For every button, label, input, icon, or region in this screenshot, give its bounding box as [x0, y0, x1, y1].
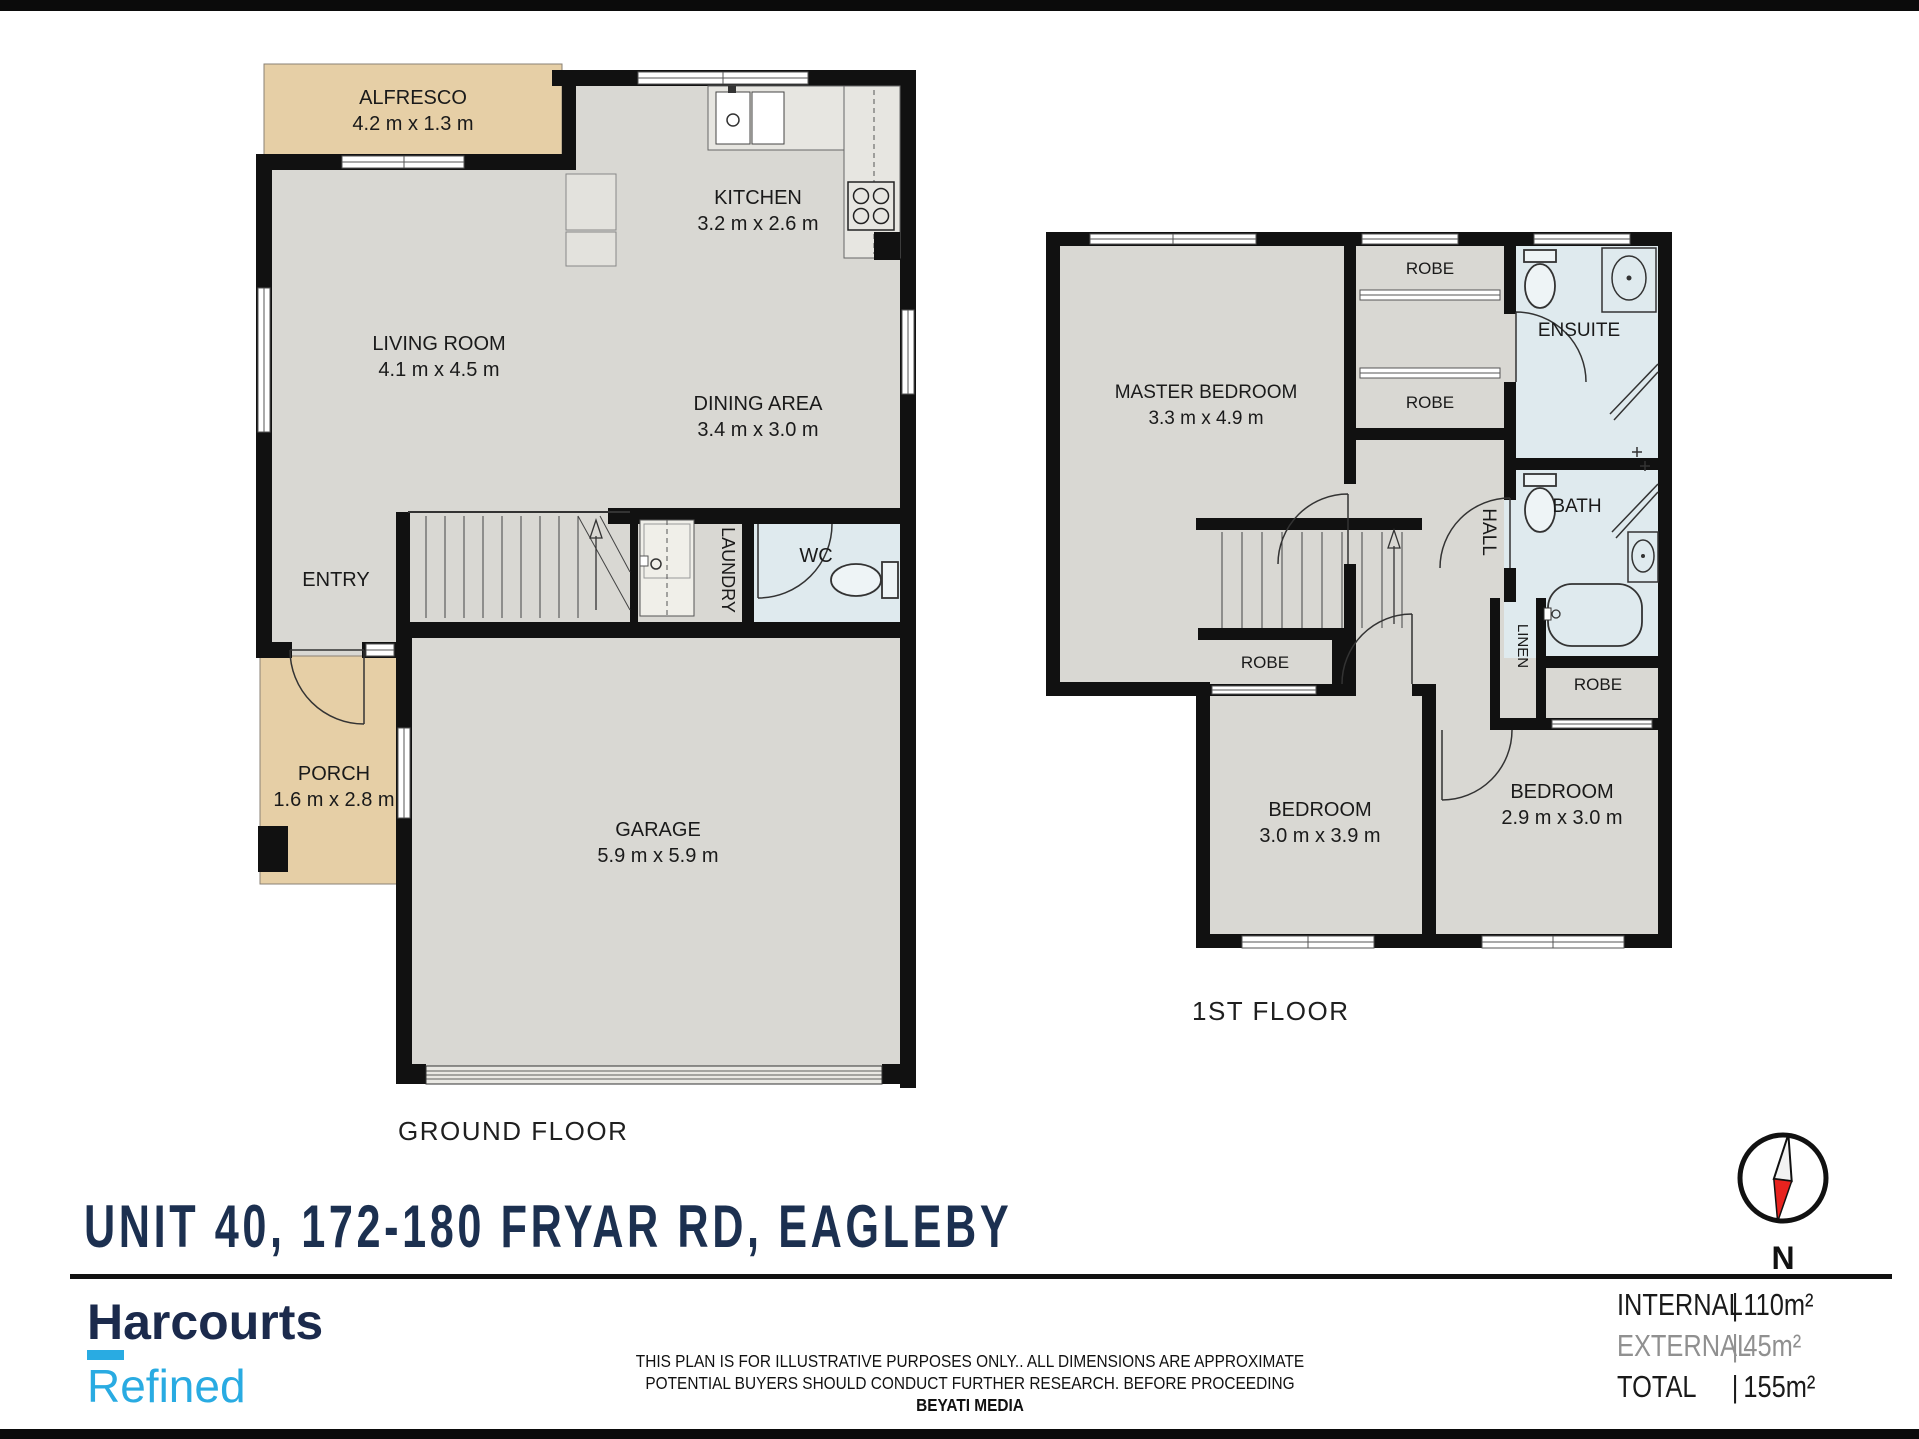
area-label: EXTERNAL — [1617, 1328, 1732, 1364]
dining-label: DINING AREA — [694, 393, 824, 415]
area-label: INTERNAL — [1617, 1287, 1732, 1323]
toilet-icon — [1524, 250, 1556, 262]
disclaimer: THIS PLAN IS FOR ILLUSTRATIVE PURPOSES O… — [590, 1350, 1350, 1416]
robe4-label: ROBE — [1574, 675, 1622, 694]
area-separator: | — [1732, 1328, 1739, 1364]
area-separator: | — [1732, 1369, 1739, 1405]
stove-icon — [848, 182, 894, 230]
alfresco-label: ALFRESCO — [359, 87, 467, 109]
kitchen-cabinets — [566, 174, 616, 266]
linen-label: LINEN — [1514, 624, 1531, 668]
master-label: MASTER BEDROOM — [1115, 382, 1298, 403]
wc-label: WC — [799, 545, 832, 567]
area-row-external: EXTERNAL | 45m² — [1617, 1328, 1815, 1369]
kitchen-block — [874, 232, 900, 260]
bedroom2-dims: 2.9 m x 3.0 m — [1501, 807, 1622, 829]
living-dims: 4.1 m x 4.5 m — [378, 359, 499, 381]
area-label: TOTAL — [1617, 1369, 1732, 1405]
kitchen-label: KITCHEN — [714, 187, 802, 209]
brand-name: Harcourts — [87, 1296, 323, 1348]
entry-label: ENTRY — [302, 569, 369, 591]
compass-icon: N — [1733, 1124, 1833, 1284]
laundry-trough — [640, 520, 694, 616]
brand-division: Refined — [87, 1362, 323, 1410]
kitchen-sink — [716, 92, 750, 144]
bottom-black-bar — [0, 1429, 1919, 1439]
area-value: 110m² — [1743, 1287, 1813, 1323]
area-value: 45m² — [1743, 1328, 1801, 1364]
ground-floor-caption: GROUND FLOOR — [398, 1116, 628, 1147]
toilet-icon — [1524, 474, 1556, 486]
ensuite-label: ENSUITE — [1538, 320, 1620, 341]
bedroom2-label: BEDROOM — [1510, 781, 1613, 803]
first-floor-plan: MASTER BEDROOM 3.3 m x 4.9 m ROBE ROBE E… — [1046, 232, 1686, 972]
area-row-internal: INTERNAL | 110m² — [1617, 1287, 1815, 1328]
alfresco-dims: 4.2 m x 1.3 m — [352, 113, 473, 135]
living-label: LIVING ROOM — [372, 333, 505, 355]
robe2-label: ROBE — [1406, 393, 1454, 412]
garage-door — [426, 1066, 882, 1084]
porch-dims: 1.6 m x 2.8 m — [273, 789, 394, 811]
divider-rule — [70, 1274, 1892, 1279]
area-separator: | — [1732, 1287, 1739, 1323]
brand-logo: Harcourts Refined — [87, 1296, 323, 1410]
bath-label: BATH — [1552, 496, 1601, 517]
disclaimer-line-3: BEYATI MEDIA — [636, 1394, 1305, 1416]
robe1-label: ROBE — [1406, 259, 1454, 278]
area-summary: INTERNAL | 110m² EXTERNAL | 45m² TOTAL |… — [1617, 1287, 1859, 1410]
porch-label: PORCH — [298, 763, 370, 785]
laundry-label: LAUNDRY — [718, 527, 738, 613]
hall-label: HALL — [1478, 508, 1499, 556]
master-dims: 3.3 m x 4.9 m — [1148, 408, 1263, 429]
dining-dims: 3.4 m x 3.0 m — [697, 419, 818, 441]
floorplan-page: ALFRESCO 4.2 m x 1.3 m KITCHEN 3.2 m x 2… — [0, 0, 1919, 1439]
bedroom1-dims: 3.0 m x 3.9 m — [1259, 825, 1380, 847]
toilet-icon — [831, 562, 898, 598]
ground-floor-plan: ALFRESCO 4.2 m x 1.3 m KITCHEN 3.2 m x 2… — [256, 62, 916, 1102]
top-black-bar — [0, 0, 1919, 11]
porch-pillar — [258, 826, 288, 872]
compass-north-label: N — [1771, 1240, 1794, 1276]
robe3-label: ROBE — [1241, 653, 1289, 672]
bedroom1-label: BEDROOM — [1268, 799, 1371, 821]
brand-accent-bar — [87, 1350, 124, 1360]
first-floor-caption: 1ST FLOOR — [1192, 996, 1350, 1027]
disclaimer-line-2: POTENTIAL BUYERS SHOULD CONDUCT FURTHER … — [636, 1372, 1305, 1394]
page-title: UNIT 40, 172-180 FRYAR RD, EAGLEBY — [84, 1192, 1012, 1261]
disclaimer-line-1: THIS PLAN IS FOR ILLUSTRATIVE PURPOSES O… — [636, 1350, 1305, 1372]
alfresco-area — [264, 64, 562, 156]
garage-dims: 5.9 m x 5.9 m — [597, 845, 718, 867]
area-value: 155m² — [1743, 1369, 1815, 1405]
kitchen-dims: 3.2 m x 2.6 m — [697, 213, 818, 235]
bathtub-icon — [1548, 584, 1642, 646]
area-row-total: TOTAL | 155m² — [1617, 1369, 1815, 1410]
garage-label: GARAGE — [615, 819, 701, 841]
